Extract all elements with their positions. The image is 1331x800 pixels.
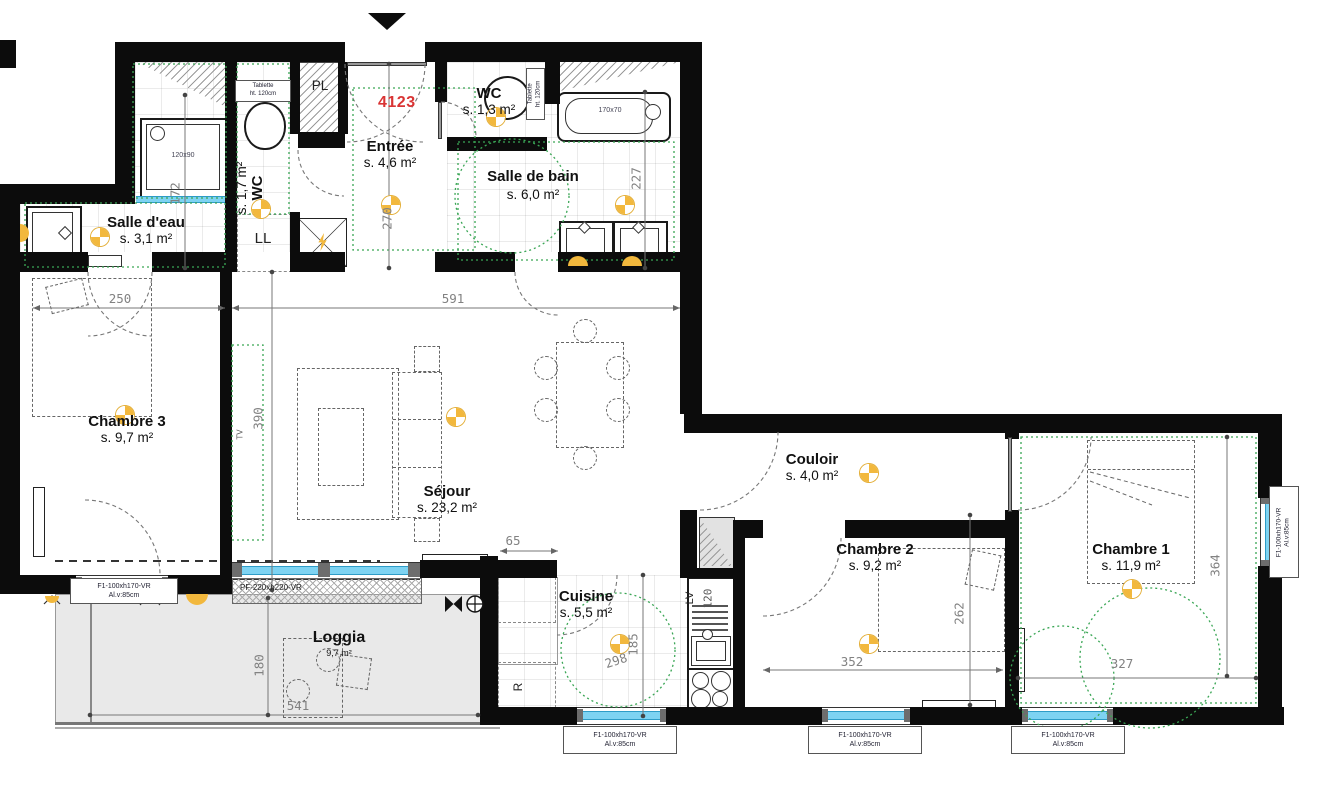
room-label-sejour: Séjour <box>402 483 492 500</box>
dimension-591: 591 <box>435 291 471 306</box>
dishwasher-width-label: 120 <box>702 579 715 619</box>
ceiling-light-icon <box>860 464 878 482</box>
apartment-number: 4123 <box>378 94 416 112</box>
room-area-wc1: s. 1,7 m² <box>234 162 249 215</box>
dimension-172: 172 <box>168 173 183 215</box>
bed-throw-lines <box>1090 472 1190 505</box>
window-sill: Al.v:85cm <box>109 591 140 600</box>
room-label-chambre2: Chambre 2 <box>830 541 920 558</box>
dimension-364: 364 <box>1208 545 1223 587</box>
window-ref: F1-100xh170-VR <box>1276 507 1283 557</box>
room-label-couloir: Couloir <box>768 451 856 468</box>
window-sill: Al.v:85cm <box>1053 740 1084 749</box>
ceiling-light-icon <box>860 635 878 653</box>
room-area-wc2: s. 1,3 m² <box>449 102 529 117</box>
dimension-327: 327 <box>1102 656 1142 671</box>
room-label-entree: Entrée <box>345 138 435 155</box>
window-sill: Al.v:85cm <box>1284 518 1291 547</box>
dimension-262: 262 <box>952 593 967 635</box>
shelf-line1: Tablette <box>528 83 534 104</box>
dimension-lines <box>33 64 1256 716</box>
shelf-line2: ht. 120cm <box>250 91 276 99</box>
room-area-entree: s. 4,6 m² <box>345 155 435 170</box>
shelf-label: Tablette ht. 120cm <box>235 80 291 102</box>
window-label-chambre3: F1-100xh170-VR Al.v:85cm <box>70 578 178 604</box>
room-label-loggia: Loggia <box>303 629 375 647</box>
bowtie-icon <box>445 596 462 612</box>
window-sill: Al.v:85cm <box>850 740 881 749</box>
shelf-line2: ht. 120cm <box>536 81 542 107</box>
ceiling-light-icon <box>447 408 465 426</box>
dishwasher-label: LV <box>684 578 696 618</box>
window-label-chambre1-side: F1-100xh170-VR Al.v:85cm <box>1269 486 1299 578</box>
floor-plan: 4123 Salle d'eau s. 3,1 m² s. 1,7 m² WC … <box>0 0 1331 800</box>
room-area-chambre2: s. 9,2 m² <box>830 558 920 573</box>
room-area-sejour: s. 23,2 m² <box>402 500 492 515</box>
dimension-541: 541 <box>278 698 318 713</box>
closet-label: PL <box>300 78 340 93</box>
room-area-chambre1: s. 11,9 m² <box>1083 558 1179 573</box>
shelf-line1: Tablette <box>252 83 273 91</box>
room-label-salle-eau: Salle d'eau <box>86 214 206 231</box>
fridge-label: R <box>511 667 525 707</box>
window-ref: F1-100xh170-VR <box>97 582 150 591</box>
room-area-salle-eau: s. 3,1 m² <box>86 231 206 246</box>
plan-linework <box>0 0 1331 800</box>
room-label-chambre3: Chambre 3 <box>67 413 187 430</box>
window-ref: F1-100xh170-VR <box>838 731 891 740</box>
window-label-rotated: F1-100xh170-VR Al.v:85cm <box>1276 489 1293 575</box>
window-label-chambre1: F1-100xh170-VR Al.v:85cm <box>1011 726 1125 754</box>
room-label-cuisine: Cuisine <box>543 588 629 605</box>
bath-size-label: 170x70 <box>588 107 632 115</box>
tv-label: TV <box>236 420 245 450</box>
shower-size-label: 120x90 <box>160 152 206 160</box>
room-area-salle-de-bain: s. 6,0 m² <box>468 187 598 202</box>
shelf-label-vertical: Tablette ht. 120cm <box>526 68 545 120</box>
window-ref: F1-100xh170-VR <box>1041 731 1094 740</box>
window-sill: Al.v:85cm <box>605 740 636 749</box>
room-area-loggia: 9,7 m² <box>303 648 375 658</box>
washer-label: LL <box>238 230 288 247</box>
room-label-wc1-group: s. 1,7 m² WC <box>230 143 270 233</box>
room-area-chambre3: s. 9,7 m² <box>67 430 187 445</box>
dimension-65: 65 <box>498 533 528 548</box>
window-ref: F1-100xh170-VR <box>593 731 646 740</box>
dimension-270: 270 <box>380 198 395 240</box>
room-area-couloir: s. 4,0 m² <box>768 468 856 483</box>
room-label-wc1: WC <box>249 176 266 201</box>
window-label-chambre2: F1-100xh170-VR Al.v:85cm <box>808 726 922 754</box>
dimension-390: 390 <box>251 398 266 440</box>
dimension-352: 352 <box>832 654 872 669</box>
room-label-salle-de-bain: Salle de bain <box>468 168 598 185</box>
room-label-wc2: WC <box>449 85 529 102</box>
dimension-180: 180 <box>252 645 267 687</box>
dimension-227: 227 <box>629 158 644 200</box>
window-label-cuisine: F1-100xh170-VR Al.v:85cm <box>563 726 677 754</box>
window-label-sejour: PF-220xh220-VR <box>240 583 350 592</box>
room-area-cuisine: s. 5,5 m² <box>543 605 629 620</box>
dimension-250: 250 <box>102 291 138 306</box>
ceiling-light-icon <box>1123 580 1141 598</box>
room-label-chambre1: Chambre 1 <box>1083 541 1179 558</box>
shelf-label-rotated: Tablette ht. 120cm <box>528 81 544 107</box>
